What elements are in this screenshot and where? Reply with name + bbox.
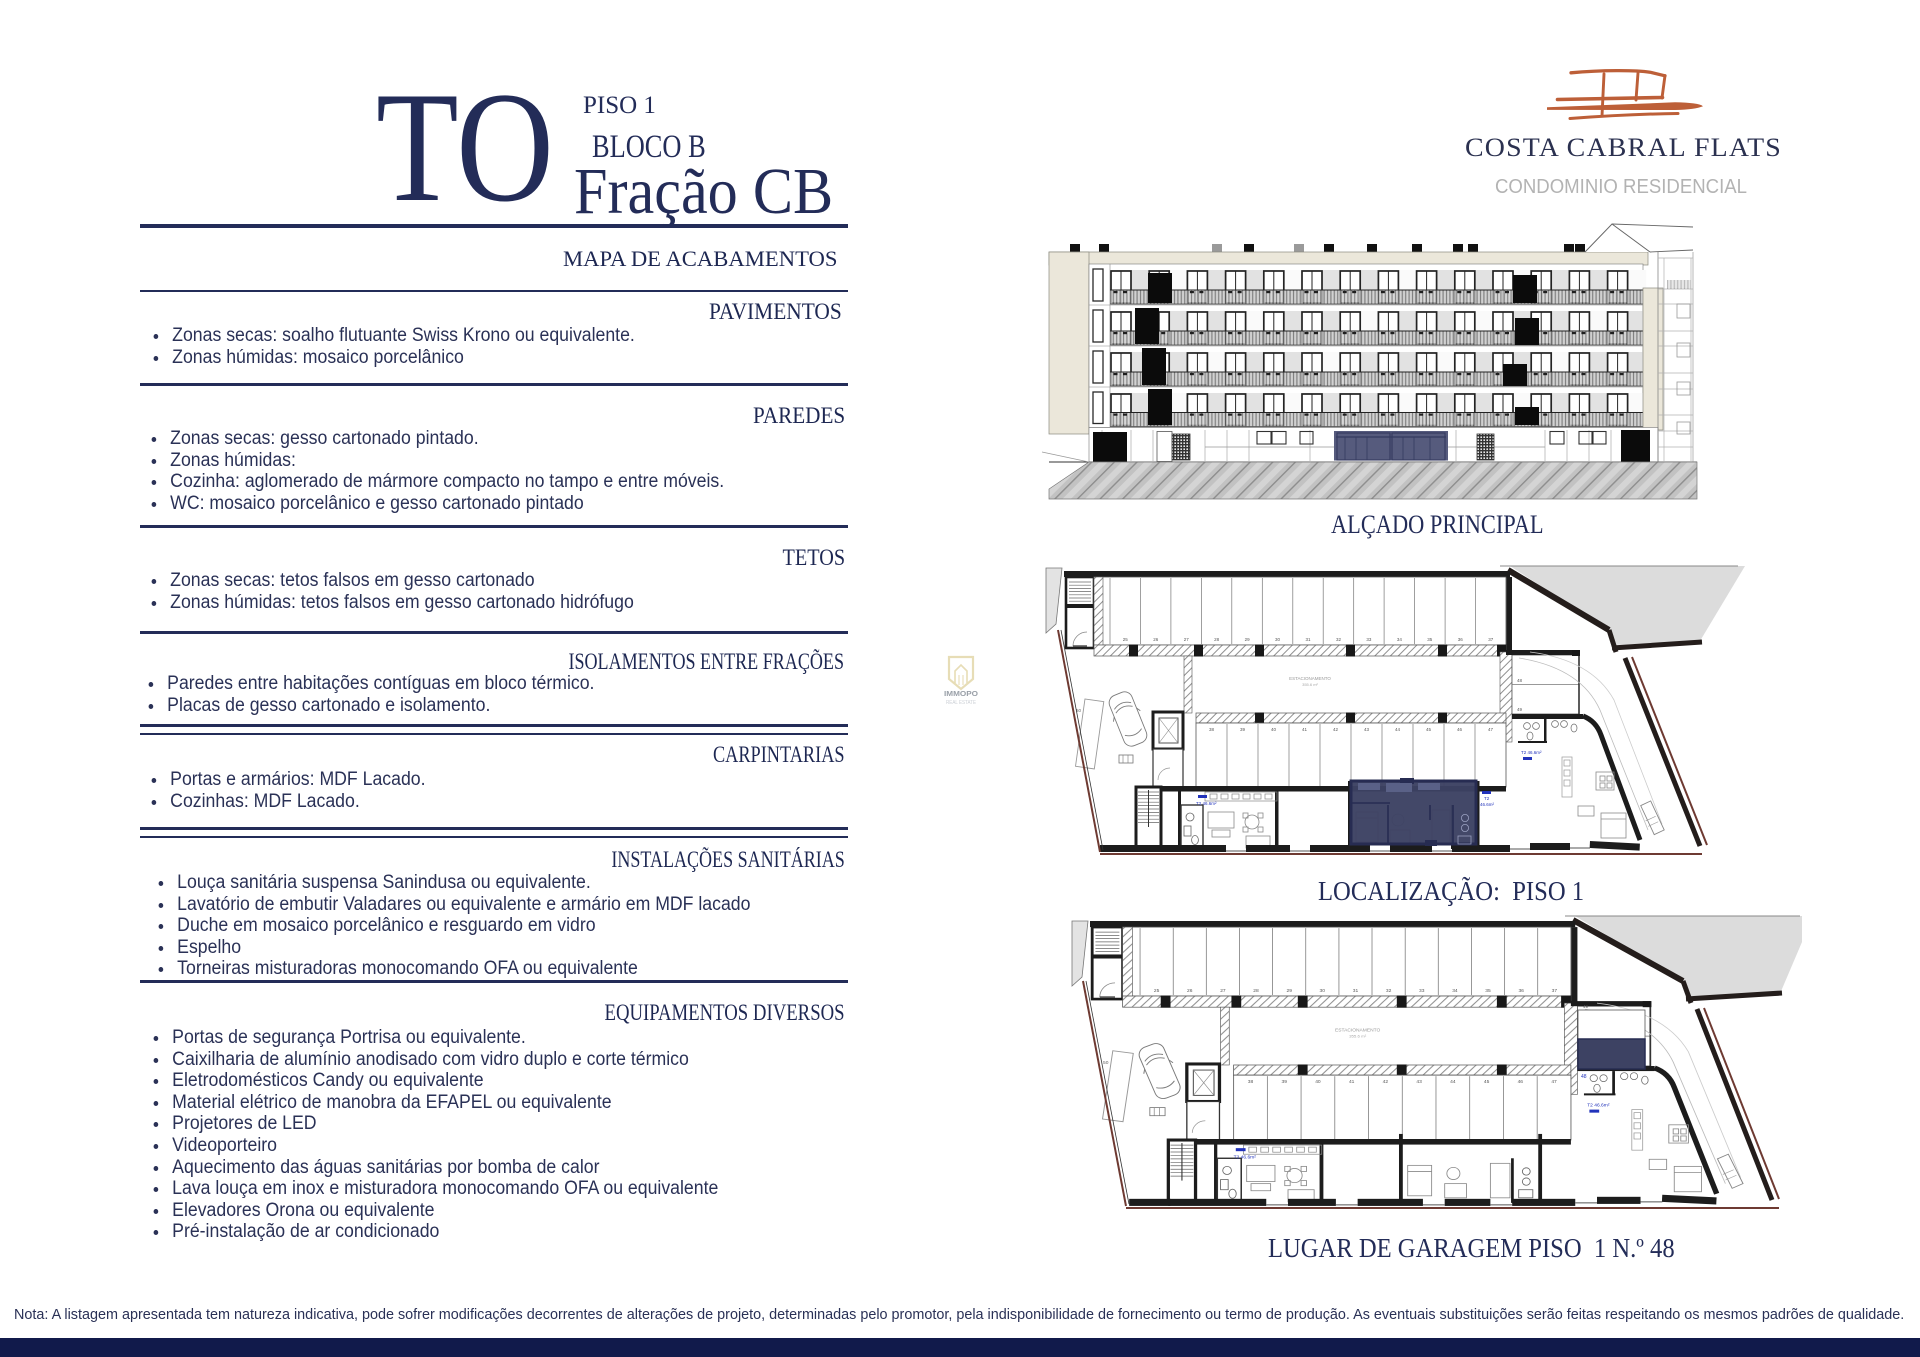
svg-text:49: 49 (1583, 1004, 1589, 1009)
svg-text:46.6m²: 46.6m² (1480, 802, 1495, 807)
svg-text:REAL ESTATE: REAL ESTATE (946, 700, 977, 706)
svg-text:48: 48 (1581, 1074, 1587, 1080)
svg-text:COSTA CABRAL FLATS: COSTA CABRAL FLATS (1465, 133, 1782, 162)
svg-text:IMMOPO: IMMOPO (944, 689, 978, 698)
svg-text:T2: T2 (1484, 796, 1490, 801)
svg-text:CONDOMINIO RESIDENCIAL: CONDOMINIO RESIDENCIAL (1495, 176, 1747, 198)
